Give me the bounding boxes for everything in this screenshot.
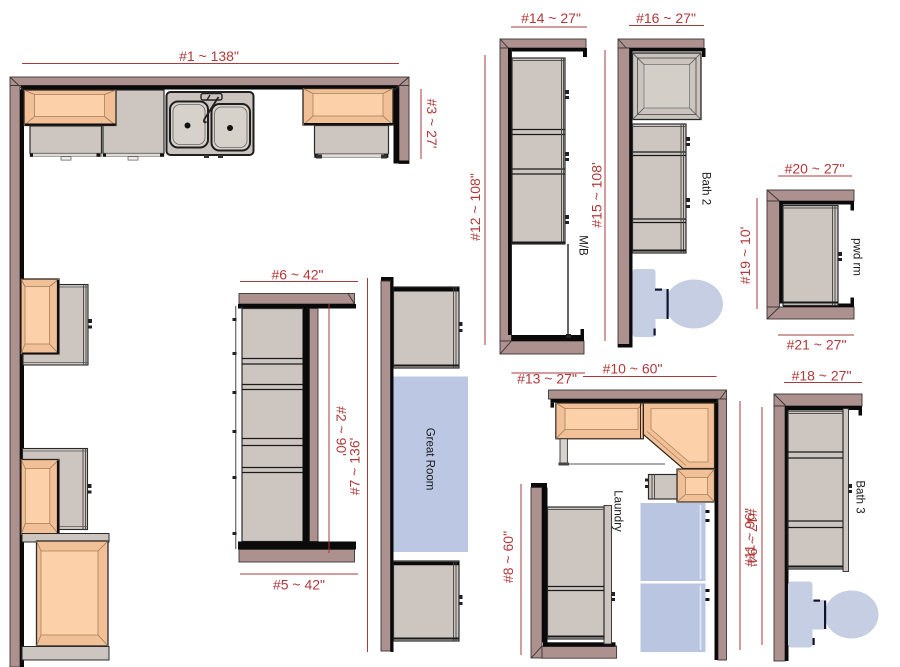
svg-text:#17 ~ 94': #17 ~ 94' [745,509,761,567]
svg-text:#16 ~ 27": #16 ~ 27" [636,10,696,26]
svg-text:#21 ~ 27": #21 ~ 27" [787,337,847,353]
svg-text:#20 ~ 27": #20 ~ 27" [785,161,845,177]
svg-text:#13 ~ 27": #13 ~ 27" [517,371,577,387]
svg-text:M/B: M/B [577,235,589,256]
svg-text:#14 ~ 27": #14 ~ 27" [521,10,581,26]
svg-text:Bath 3: Bath 3 [854,480,866,513]
svg-text:Bath 2: Bath 2 [700,172,712,205]
svg-text:#8 ~ 60": #8 ~ 60" [500,531,516,583]
svg-text:Laundry: Laundry [612,490,624,532]
svg-text:#6 ~ 42": #6 ~ 42" [271,267,323,283]
svg-text:#18 ~ 27": #18 ~ 27" [792,368,852,384]
svg-text:pwd rm: pwd rm [851,238,863,276]
svg-text:#15 ~ 108': #15 ~ 108' [589,162,605,227]
svg-text:#7 ~ 136': #7 ~ 136' [347,438,363,496]
svg-text:#12 ~ 108": #12 ~ 108" [467,173,483,241]
svg-text:#5 ~ 42": #5 ~ 42" [273,577,325,593]
svg-text:Great Room: Great Room [424,428,436,491]
svg-text:#3 ~ 27': #3 ~ 27' [424,99,440,149]
svg-text:#10 ~ 60": #10 ~ 60" [603,361,663,377]
svg-text:#1 ~ 138": #1 ~ 138" [179,48,239,64]
svg-text:#19 ~ 10': #19 ~ 10' [737,227,753,285]
